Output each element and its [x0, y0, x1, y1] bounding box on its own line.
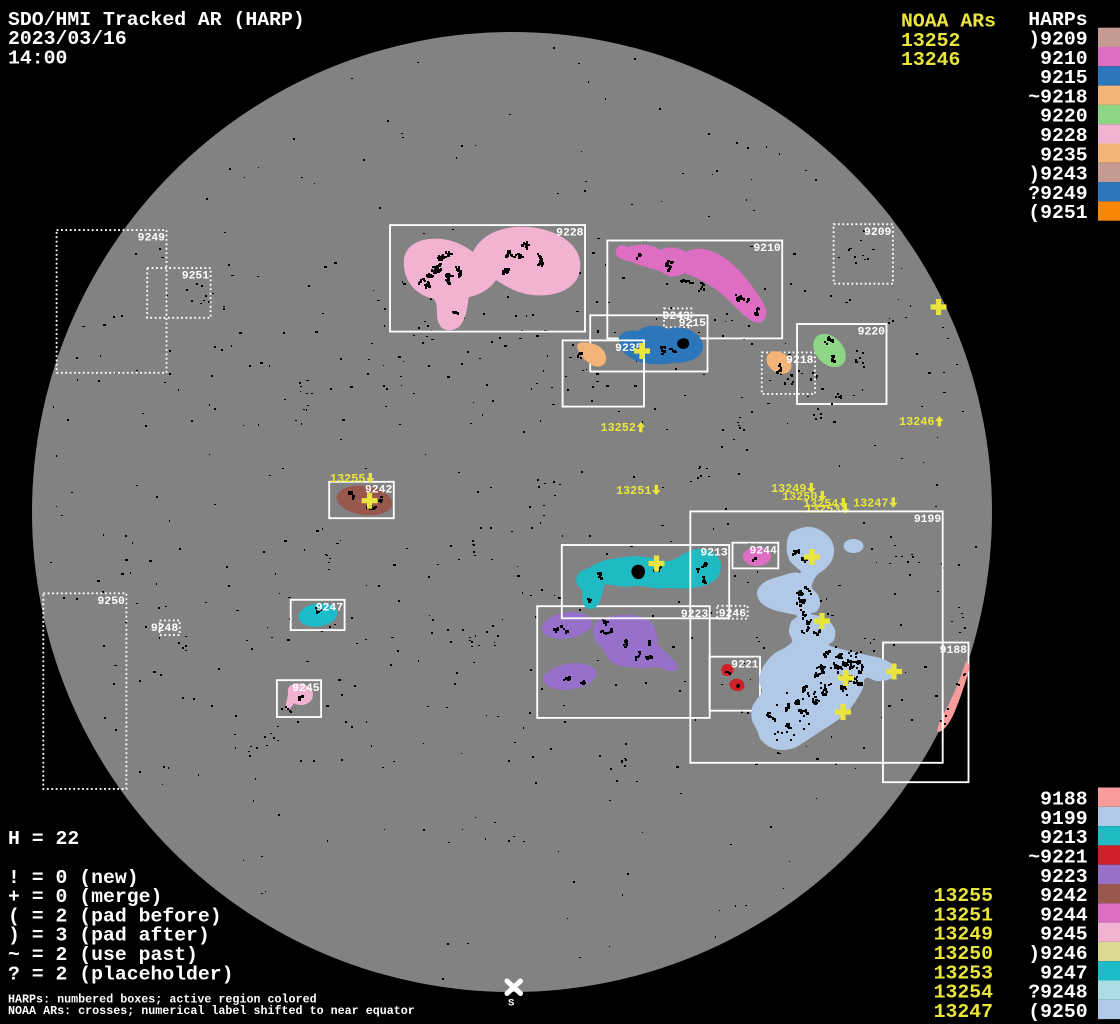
svg-text:9213: 9213 — [700, 548, 728, 560]
svg-text:13255: 13255 — [330, 472, 365, 486]
svg-text:13247: 13247 — [853, 497, 888, 511]
svg-text:9209: 9209 — [864, 227, 892, 239]
svg-text:13252: 13252 — [601, 421, 636, 435]
svg-text:9228: 9228 — [556, 228, 584, 240]
svg-text:S: S — [508, 998, 514, 1010]
svg-text:9188: 9188 — [940, 645, 968, 657]
svg-text:H = 22: H = 22 — [8, 828, 79, 850]
svg-text:? = 2 (placeholder): ? = 2 (placeholder) — [8, 963, 234, 985]
svg-text:9220: 9220 — [858, 327, 886, 339]
svg-text:9250: 9250 — [98, 596, 126, 608]
svg-text:(9251: (9251 — [1028, 202, 1087, 224]
svg-text:9251: 9251 — [182, 271, 210, 283]
svg-text:9199: 9199 — [914, 514, 942, 526]
svg-text:9249: 9249 — [138, 233, 166, 245]
svg-text:(9250: (9250 — [1028, 1001, 1087, 1023]
svg-text:9246: 9246 — [719, 608, 747, 620]
svg-text:9243: 9243 — [663, 311, 691, 323]
svg-text:9248: 9248 — [151, 623, 179, 635]
svg-text:9218: 9218 — [786, 355, 814, 367]
svg-text:NOAA ARs: crosses; numerical l: NOAA ARs: crosses; numerical label shift… — [8, 1004, 415, 1018]
svg-text:9210: 9210 — [753, 243, 781, 255]
svg-text:9223: 9223 — [681, 609, 709, 621]
svg-text:9245: 9245 — [292, 683, 320, 695]
svg-text:13247: 13247 — [934, 1001, 993, 1023]
svg-text:13246: 13246 — [901, 49, 960, 71]
svg-text:14:00: 14:00 — [8, 48, 67, 70]
svg-text:9247: 9247 — [316, 602, 344, 614]
svg-text:13246: 13246 — [899, 415, 934, 429]
svg-text:13254: 13254 — [803, 497, 838, 511]
svg-text:9244: 9244 — [749, 545, 777, 557]
svg-text:9221: 9221 — [731, 659, 759, 671]
svg-text:13251: 13251 — [616, 484, 651, 498]
